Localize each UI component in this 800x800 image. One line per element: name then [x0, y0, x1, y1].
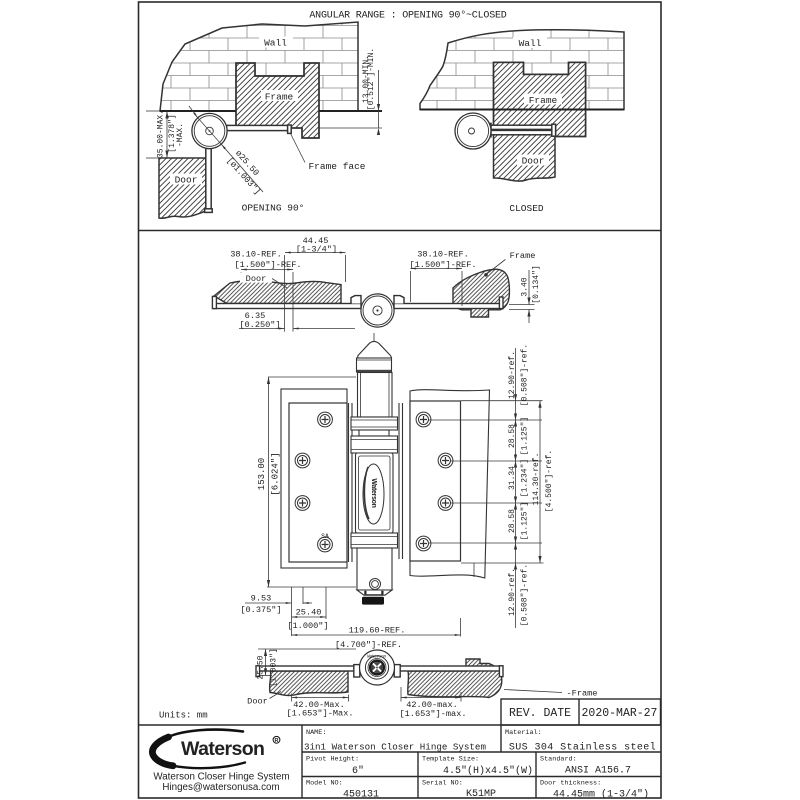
svg-text:Hinges@watersonusa.com: Hinges@watersonusa.com	[162, 782, 279, 793]
svg-text:[1.125"]: [1.125"]	[521, 417, 530, 455]
svg-text:OPENING 90°: OPENING 90°	[242, 203, 305, 214]
svg-text:38.10-REF.: 38.10-REF.	[417, 250, 469, 260]
svg-text:Frame: Frame	[265, 92, 294, 103]
svg-text:[1.500"]-REF.: [1.500"]-REF.	[234, 260, 301, 270]
svg-text:[1.500"]-REF.: [1.500"]-REF.	[409, 260, 476, 270]
svg-text:28.58: 28.58	[508, 509, 517, 533]
svg-text:12.90-ref.: 12.90-ref.	[508, 351, 517, 399]
svg-text:-Frame: -Frame	[567, 689, 598, 699]
svg-text:[6.024"]: [6.024"]	[271, 452, 281, 495]
svg-text:[0.512"]-MIN.: [0.512"]-MIN.	[367, 48, 376, 110]
svg-text:[4.700"]-REF.: [4.700"]-REF.	[335, 640, 402, 650]
svg-text:35.00-MAX.: 35.00-MAX.	[157, 110, 166, 158]
svg-text:119.60-REF.: 119.60-REF.	[349, 626, 406, 636]
svg-text:25.50: 25.50	[257, 655, 266, 679]
svg-text:31.34: 31.34	[508, 466, 517, 490]
svg-text:38.10-REF.: 38.10-REF.	[230, 250, 282, 260]
svg-text:SUS 304 Stainless steel: SUS 304 Stainless steel	[509, 742, 656, 754]
svg-text:K51MP: K51MP	[466, 789, 496, 800]
svg-text:Door thickness:: Door thickness:	[540, 780, 601, 788]
svg-text:114.30-ref.: 114.30-ref.	[532, 453, 541, 506]
svg-text:Wall: Wall	[519, 38, 542, 49]
svg-text:[0.375"]: [0.375"]	[240, 605, 281, 615]
svg-text:CLOSED: CLOSED	[509, 203, 544, 214]
svg-text:Wall: Wall	[264, 38, 287, 49]
svg-text:Units: mm: Units: mm	[159, 711, 208, 721]
svg-text:[1.003"]: [1.003"]	[270, 648, 279, 686]
svg-text:Material:: Material:	[505, 729, 542, 737]
svg-text:[0.508"]-ref.: [0.508"]-ref.	[521, 564, 530, 626]
svg-text:44.45mm (1-3/4"): 44.45mm (1-3/4")	[553, 789, 649, 800]
svg-text:ANSI A156.7: ANSI A156.7	[565, 766, 631, 777]
svg-text:Door: Door	[246, 274, 267, 284]
svg-text:[1.125"]: [1.125"]	[521, 502, 530, 540]
svg-text:[1.653"]-max.: [1.653"]-max.	[399, 709, 466, 719]
svg-text:-MAX.: -MAX.	[176, 123, 185, 147]
svg-text:12.90-ref.: 12.90-ref.	[508, 568, 517, 616]
svg-text:[1.000"]: [1.000"]	[287, 621, 328, 631]
svg-text:Template Size:: Template Size:	[422, 756, 479, 764]
svg-text:9.53: 9.53	[251, 594, 272, 604]
svg-text:Standard:: Standard:	[540, 756, 577, 764]
svg-text:Waterson Closer Hinge System: Waterson Closer Hinge System	[153, 772, 289, 783]
svg-text:6": 6"	[352, 765, 364, 777]
svg-text:ANGULAR RANGE : OPENING 90°~CL: ANGULAR RANGE : OPENING 90°~CLOSED	[309, 10, 506, 22]
svg-text:[0.250"]: [0.250"]	[239, 320, 280, 330]
svg-text:Waterson: Waterson	[181, 738, 264, 760]
svg-text:25.40: 25.40	[296, 608, 322, 618]
svg-text:Frame: Frame	[529, 95, 558, 106]
svg-text:Model NO:: Model NO:	[306, 780, 343, 788]
svg-text:28.58: 28.58	[508, 424, 517, 448]
svg-text:R: R	[275, 738, 279, 744]
svg-text:450131: 450131	[343, 790, 379, 800]
svg-text:[1.234"]: [1.234"]	[521, 459, 530, 497]
svg-text:153.00: 153.00	[257, 458, 267, 490]
svg-text:REV. DATE: REV. DATE	[509, 707, 571, 720]
svg-text:[0.134"]: [0.134"]	[532, 265, 541, 303]
svg-text:Frame face: Frame face	[308, 161, 365, 172]
svg-text:[0.508"]-ref.: [0.508"]-ref.	[521, 344, 530, 406]
svg-text:Waterson: Waterson	[367, 655, 386, 660]
svg-text:Serial NO:: Serial NO:	[422, 780, 463, 788]
svg-text:Door: Door	[175, 175, 198, 186]
svg-text:[1.653"]-Max.: [1.653"]-Max.	[286, 709, 353, 719]
svg-text:3.40: 3.40	[521, 277, 530, 296]
svg-text:Door: Door	[522, 156, 545, 167]
svg-text:4.5"(H)x4.5"(W): 4.5"(H)x4.5"(W)	[443, 765, 533, 777]
svg-text:3in1 Waterson Closer Hinge Sys: 3in1 Waterson Closer Hinge System	[304, 742, 486, 753]
svg-text:Waterson: Waterson	[370, 478, 377, 507]
svg-text:[1-3/4"]: [1-3/4"]	[296, 244, 337, 254]
svg-text:Door: Door	[247, 697, 268, 707]
svg-text:NAME:: NAME:	[306, 729, 326, 737]
svg-text:SA: SA	[321, 533, 329, 540]
svg-text:Pivot Height:: Pivot Height:	[306, 756, 359, 764]
svg-text:[4.500"]-ref.: [4.500"]-ref.	[545, 450, 554, 512]
svg-text:Frame: Frame	[510, 251, 536, 261]
svg-text:2020-MAR-27: 2020-MAR-27	[582, 707, 658, 720]
